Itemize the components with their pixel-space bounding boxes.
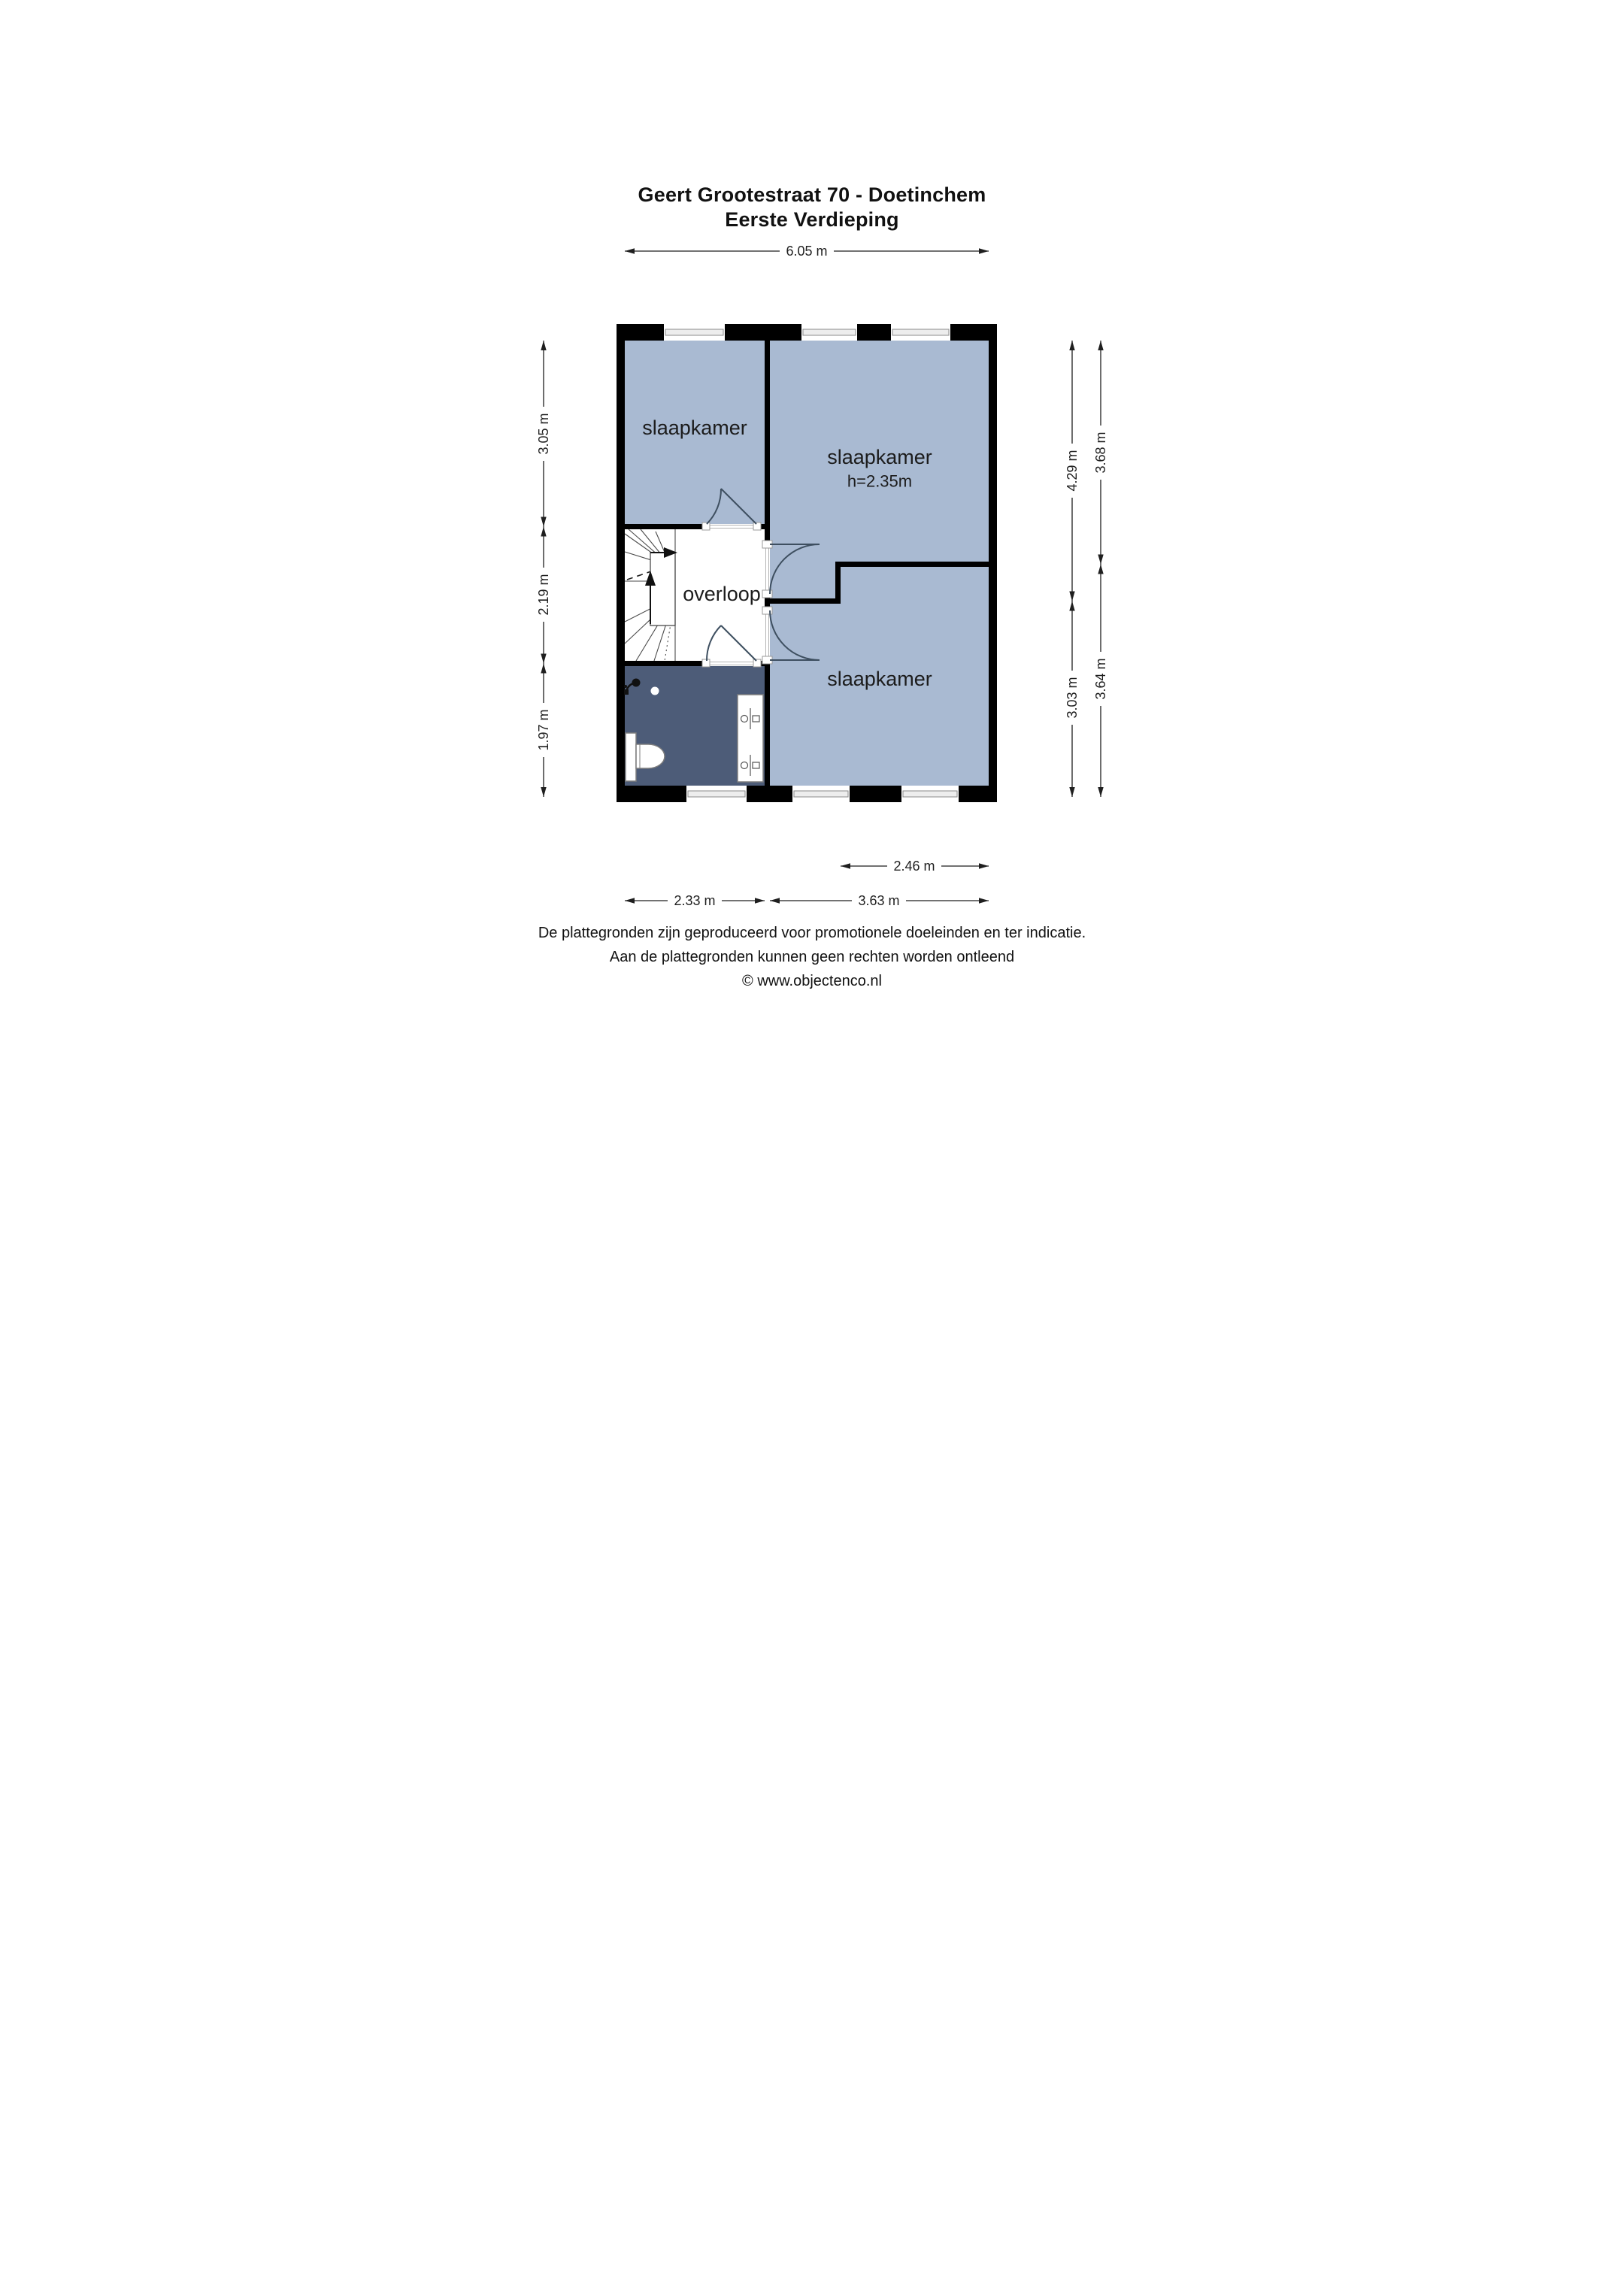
dim-right-inner-4-29: 4.29 m bbox=[1063, 341, 1081, 601]
bedroom-right-floor bbox=[770, 341, 989, 598]
disclaimer-copyright: © www.objectenco.nl bbox=[406, 969, 1218, 993]
wall-left-side bbox=[617, 324, 625, 802]
vanity-sink bbox=[738, 695, 763, 782]
dim-bottom-2-46: 2.46 m bbox=[841, 857, 989, 875]
dim-right-inner-3-03: 3.03 m bbox=[1063, 601, 1081, 798]
dim-left-2-19: 2.19 m bbox=[535, 527, 553, 664]
dim-left-3-05: 3.05 m bbox=[535, 341, 553, 527]
label-bedroom-right: slaapkamer bbox=[827, 446, 932, 468]
window-bottom-2 bbox=[792, 786, 850, 802]
svg-text:3.05 m: 3.05 m bbox=[536, 413, 551, 454]
window-top-3 bbox=[891, 324, 950, 341]
svg-text:3.64 m: 3.64 m bbox=[1093, 658, 1108, 699]
dim-right-outer-3-68: 3.68 m bbox=[1092, 341, 1110, 565]
wall-bedroom1-bottom-a bbox=[625, 524, 707, 529]
dim-top-width: 6.05 m bbox=[625, 242, 989, 260]
svg-text:3.03 m: 3.03 m bbox=[1065, 677, 1080, 718]
disclaimer-line-1: De plattegronden zijn geproduceerd voor … bbox=[406, 921, 1218, 945]
dim-left-1-97: 1.97 m bbox=[535, 664, 553, 798]
svg-text:2.19 m: 2.19 m bbox=[536, 574, 551, 615]
dim-bottom-3-63: 3.63 m bbox=[770, 892, 989, 910]
svg-text:6.05 m: 6.05 m bbox=[786, 244, 827, 259]
window-top-1 bbox=[664, 324, 725, 341]
svg-text:3.68 m: 3.68 m bbox=[1093, 432, 1108, 473]
wall-bathroom-top-a bbox=[625, 661, 707, 666]
wall-step-jog bbox=[835, 562, 841, 604]
label-bedroom-bottom-right: slaapkamer bbox=[827, 668, 932, 690]
dim-right-outer-3-64: 3.64 m bbox=[1092, 565, 1110, 798]
disclaimer-line-2: Aan de plattegronden kunnen geen rechten… bbox=[406, 945, 1218, 969]
wall-step-upper bbox=[835, 562, 989, 567]
svg-text:2.33 m: 2.33 m bbox=[674, 893, 715, 908]
floorplan-page: Geert Grootestraat 70 - Doetinchem Eerst… bbox=[406, 0, 1218, 1148]
wall-step-lower bbox=[770, 598, 841, 604]
stairwell-void bbox=[650, 553, 675, 625]
disclaimer: De plattegronden zijn geproduceerd voor … bbox=[406, 921, 1218, 993]
label-bedroom-top-left: slaapkamer bbox=[642, 416, 747, 439]
label-landing: overloop bbox=[683, 583, 761, 605]
wall-divider-upper bbox=[765, 324, 770, 544]
wall-right-side bbox=[989, 324, 997, 802]
dim-bottom-2-33: 2.33 m bbox=[625, 892, 765, 910]
shower-drain bbox=[651, 687, 659, 695]
svg-text:1.97 m: 1.97 m bbox=[536, 709, 551, 750]
window-top-2 bbox=[801, 324, 857, 341]
window-bottom-1 bbox=[686, 786, 747, 802]
svg-text:3.63 m: 3.63 m bbox=[858, 893, 899, 908]
wall-divider-lower bbox=[765, 660, 770, 802]
label-bedroom-right-height: h=2.35m bbox=[847, 472, 912, 491]
window-bottom-3 bbox=[901, 786, 959, 802]
svg-text:2.46 m: 2.46 m bbox=[893, 859, 935, 874]
svg-text:4.29 m: 4.29 m bbox=[1065, 450, 1080, 491]
